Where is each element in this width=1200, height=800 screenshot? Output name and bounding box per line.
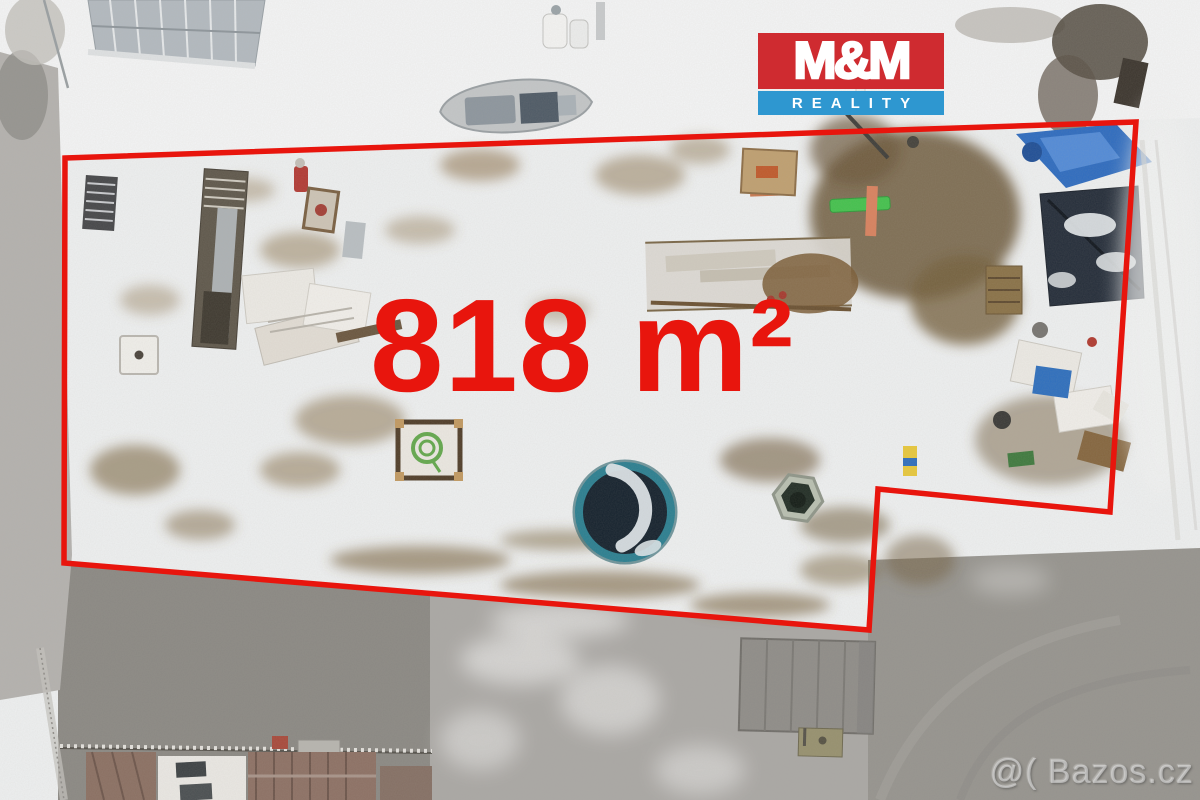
aerial-photo [0,0,1200,800]
grain-overlay [0,0,1200,800]
real-estate-listing-photo: M&M REALITY 818 m² @( Bazos.cz [0,0,1200,800]
